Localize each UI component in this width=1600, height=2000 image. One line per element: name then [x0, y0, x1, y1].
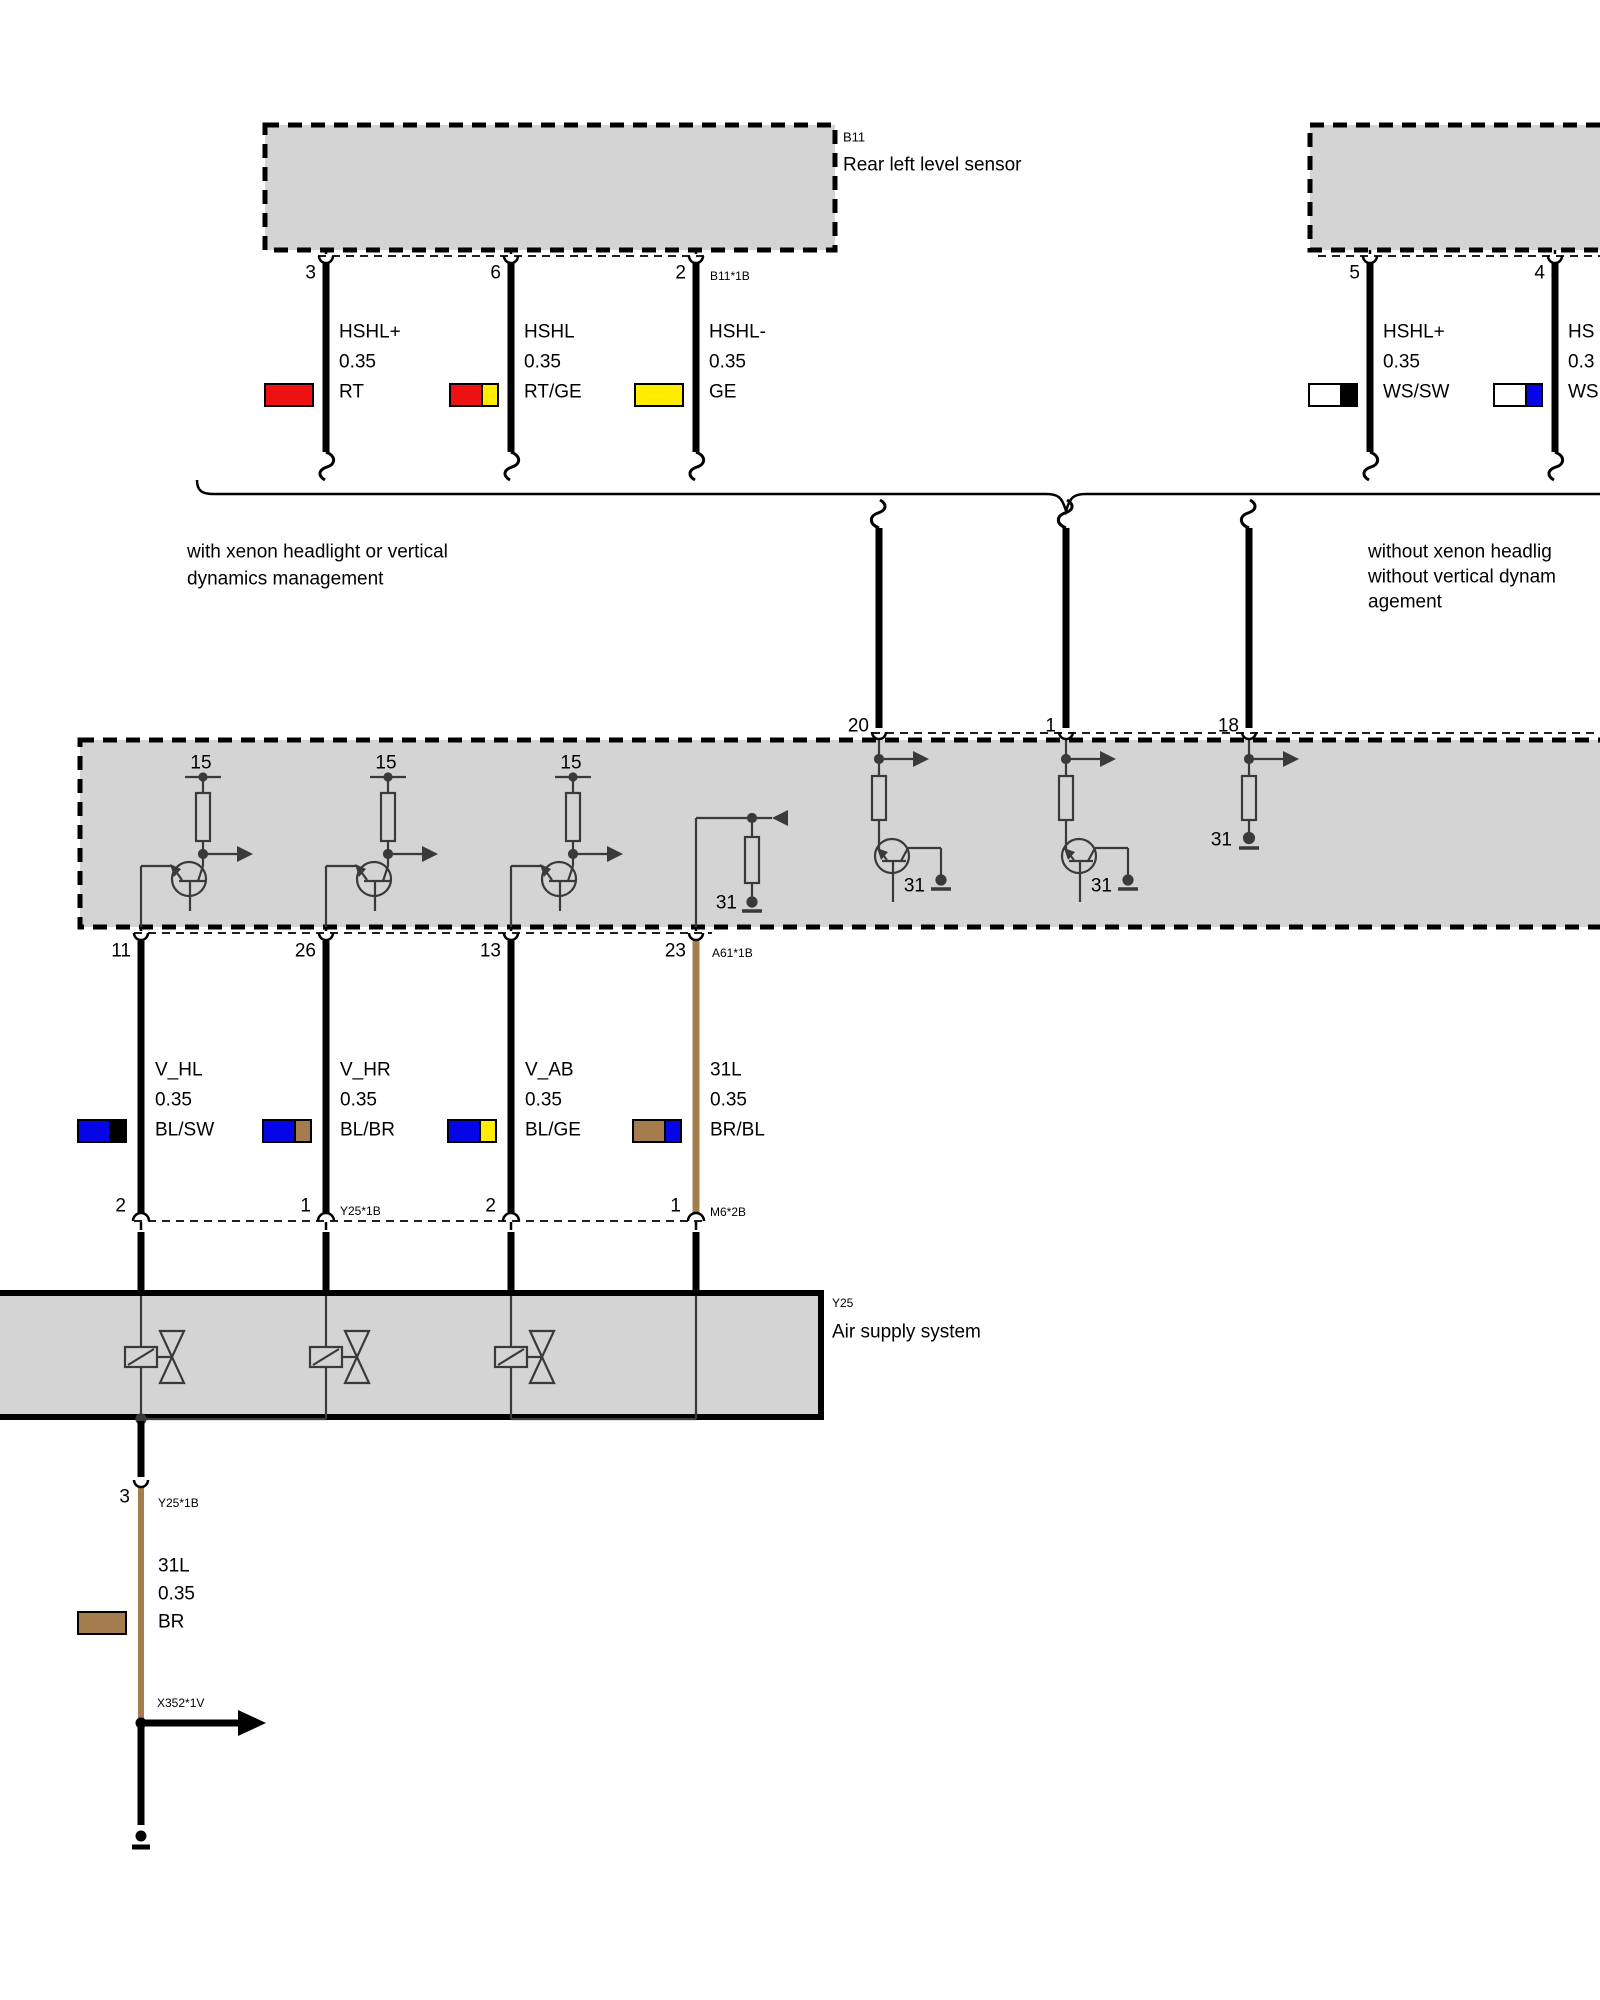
pin-number: 13 [480, 942, 501, 961]
variant-note-left: dynamics management [187, 570, 383, 589]
wire-color-swatch-ws-sw [1308, 383, 1358, 407]
splice-arrow-icon [136, 1710, 267, 1736]
wire-color-code: WS/SW [1383, 383, 1450, 402]
wire-signal: HSHL+ [339, 323, 401, 342]
wire-color-code: BR/BL [710, 1121, 765, 1140]
component-id-b11: B11 [843, 131, 865, 144]
wire-gauge: 0.35 [525, 1091, 562, 1110]
wire-color-code: WS [1568, 383, 1599, 402]
wire-signal: HS [1568, 323, 1594, 342]
pin-number: 3 [305, 264, 316, 283]
variant-note-right: without xenon headlig [1368, 543, 1552, 562]
component-name-y25: Air supply system [832, 1323, 981, 1342]
pin-number: 1 [1045, 717, 1056, 736]
wire-color-swatch-bl-br [262, 1119, 312, 1143]
connector-label-b11-1b: B11*1B [710, 270, 750, 282]
wire-signal: V_HL [155, 1061, 203, 1080]
wire-signal: V_HR [340, 1061, 391, 1080]
pin-number: 3 [119, 1488, 130, 1507]
pin-number: 1 [670, 1197, 681, 1216]
wire-gauge: 0.35 [340, 1091, 377, 1110]
pin-number: 1 [300, 1197, 311, 1216]
terminal-15-label: 15 [375, 754, 396, 773]
diagram-graphics [0, 0, 1600, 2000]
connector-label-m6-2b: M6*2B [710, 1206, 746, 1218]
wire-color-code: BL/SW [155, 1121, 214, 1140]
wire-gauge: 0.35 [339, 353, 376, 372]
pin-number: 4 [1534, 264, 1545, 283]
component-box-rear-left-level-sensor [265, 125, 835, 250]
component-id-y25: Y25 [832, 1297, 853, 1309]
variant-note-right: without vertical dynam [1368, 568, 1556, 587]
wire-color-swatch-bl-sw [77, 1119, 127, 1143]
wire-color-swatch-br [77, 1611, 127, 1635]
swatch-secondary [664, 1121, 680, 1141]
wire-gauge: 0.3 [1568, 353, 1594, 372]
wire-color-code: BL/GE [525, 1121, 581, 1140]
swatch-secondary [479, 1121, 495, 1141]
option-brace [197, 480, 1600, 511]
wire-signal: 31L [710, 1061, 742, 1080]
wire-color-code: BL/BR [340, 1121, 395, 1140]
wire-color-code: GE [709, 383, 736, 402]
wire-signal: V_AB [525, 1061, 574, 1080]
component-box-rear-right-level-sensor [1310, 125, 1600, 250]
wire-gauge: 0.35 [158, 1585, 195, 1604]
swatch-secondary [1525, 385, 1541, 405]
pin-number: 2 [115, 1197, 126, 1216]
variant-note-right: agement [1368, 593, 1442, 612]
wiring-diagram: B11 Rear left level sensor 3 6 2 B11*1B … [0, 0, 1600, 2000]
swatch-secondary [481, 385, 497, 405]
terminal-31-label: 31 [1211, 831, 1232, 850]
terminal-31-label: 31 [904, 877, 925, 896]
wire-color-swatch-rt-ge [449, 383, 499, 407]
pin-number: 11 [111, 942, 131, 961]
swatch-secondary [294, 1121, 310, 1141]
wire-color-swatch-bl-ge [447, 1119, 497, 1143]
swatch-secondary [109, 1121, 125, 1141]
terminal-15-label: 15 [190, 754, 211, 773]
pin-number: 2 [675, 264, 686, 283]
pin-number: 2 [485, 1197, 496, 1216]
wire-color-swatch-ge [634, 383, 684, 407]
wire-color-code: RT [339, 383, 364, 402]
wire-gauge: 0.35 [155, 1091, 192, 1110]
component-name-b11: Rear left level sensor [843, 156, 1021, 175]
pin-number: 20 [848, 717, 869, 736]
wires-black [141, 263, 1555, 1825]
terminal-31-label: 31 [1091, 877, 1112, 896]
wire-color-swatch-rt [264, 383, 314, 407]
wire-color-code: BR [158, 1613, 184, 1632]
ground-icon [132, 1831, 150, 1848]
wire-color-swatch-ws-bl [1493, 383, 1543, 407]
pin-number: 26 [295, 942, 316, 961]
wire-break-icons [320, 452, 1563, 528]
variant-note-left: with xenon headlight or vertical [187, 543, 448, 562]
swatch-secondary [1340, 385, 1356, 405]
wire-gauge: 0.35 [709, 353, 746, 372]
wire-signal: HSHL- [709, 323, 766, 342]
pin-number: 23 [665, 942, 686, 961]
wire-color-swatch-br-bl [632, 1119, 682, 1143]
wire-signal: HSHL [524, 323, 575, 342]
wire-gauge: 0.35 [1383, 353, 1420, 372]
connector-label-y25-1b: Y25*1B [340, 1205, 381, 1217]
splice-label-x352-1v: X352*1V [157, 1697, 204, 1709]
wire-gauge: 0.35 [710, 1091, 747, 1110]
terminal-15-label: 15 [560, 754, 581, 773]
pin-number: 5 [1349, 264, 1360, 283]
terminal-31-label: 31 [716, 894, 737, 913]
pin-number: 6 [490, 264, 501, 283]
wire-signal: HSHL+ [1383, 323, 1445, 342]
wire-color-code: RT/GE [524, 383, 582, 402]
wire-gauge: 0.35 [524, 353, 561, 372]
connector-label-a61-1b: A61*1B [712, 947, 753, 959]
component-box-air-supply-system [0, 1293, 821, 1417]
pin-number: 18 [1218, 717, 1239, 736]
component-box-control-unit [80, 740, 1600, 927]
wire-signal: 31L [158, 1557, 190, 1576]
connector-label-y25-1b: Y25*1B [158, 1497, 199, 1509]
